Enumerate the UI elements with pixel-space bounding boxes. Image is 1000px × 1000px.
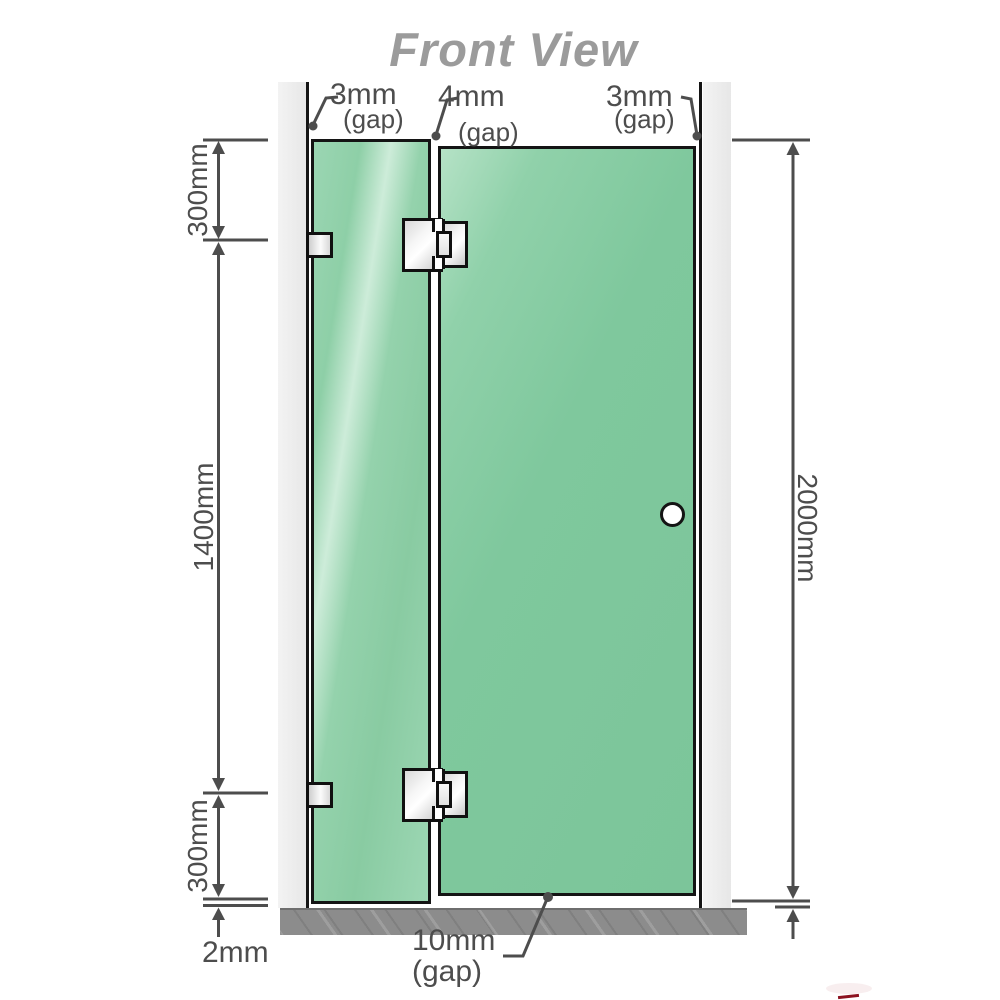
dimension-annotations xyxy=(0,0,1000,1000)
dim-label-top-center-gap: 4mm xyxy=(438,82,505,112)
dim-label-bottom-left-gap: 2mm xyxy=(202,938,269,968)
dim-label-left-lower: 300mm xyxy=(184,766,212,926)
dim-label-bottom-center-gap-qualifier: (gap) xyxy=(412,957,482,987)
dim-label-top-center-gap-qualifier: (gap) xyxy=(458,119,519,145)
dim-label-bottom-center-gap: 10mm xyxy=(412,926,495,956)
dim-label-top-right-gap-qualifier: (gap) xyxy=(614,106,675,132)
watermark-smudge xyxy=(826,983,872,994)
dim-label-top-left-gap-qualifier: (gap) xyxy=(343,106,404,132)
dim-label-left-upper: 300mm xyxy=(184,110,212,270)
dim-label-right-height: 2000mm xyxy=(793,448,821,608)
shower-screen-front-view-diagram: Front View xyxy=(0,0,1000,1000)
dim-label-left-middle: 1400mm xyxy=(190,437,218,597)
